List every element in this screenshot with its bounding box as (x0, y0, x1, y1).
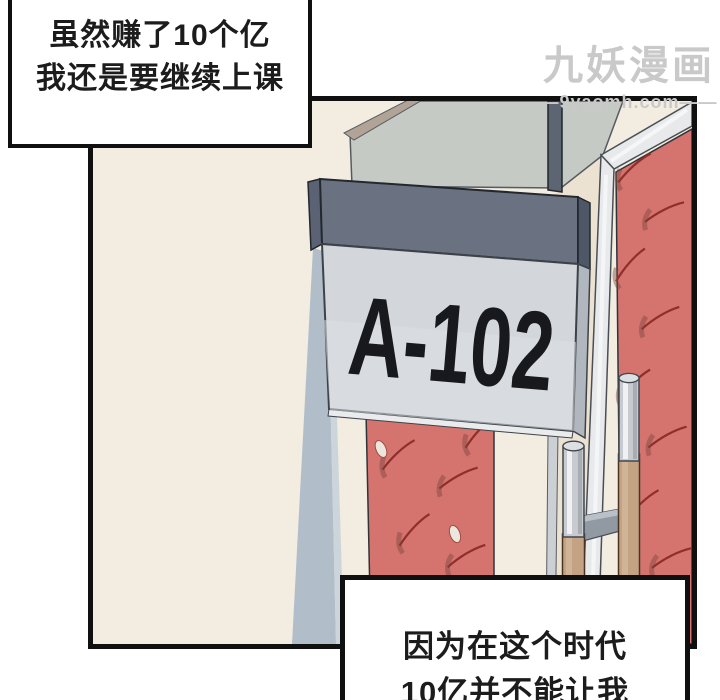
door-sign: A-102 (308, 179, 590, 438)
caption-bottom-line2: 10亿并不能让我 (401, 670, 629, 700)
door-sign-text: A-102 (344, 273, 559, 415)
sign-band-side (578, 197, 590, 269)
speech-bubble-top-line1: 虽然赚了10个亿 (49, 14, 270, 57)
comic-page: A-102 九妖漫画 —9yaomh.com—— 虽然赚了10个亿 我还是要继续… (0, 0, 720, 700)
panel-artwork: A-102 (93, 101, 692, 644)
speech-bubble-top-line2: 我还是要继续上课 (36, 57, 284, 100)
comic-panel: A-102 (88, 96, 697, 649)
caption-bottom-line1: 因为在这个时代 (403, 624, 627, 670)
caption-box-bottom: 因为在这个时代 10亿并不能让我 (340, 575, 690, 700)
watermark-brand: 九妖漫画 (538, 46, 720, 86)
transom-post (548, 101, 562, 192)
speech-bubble-top: 虽然赚了10个亿 我还是要继续上课 (8, 0, 312, 148)
